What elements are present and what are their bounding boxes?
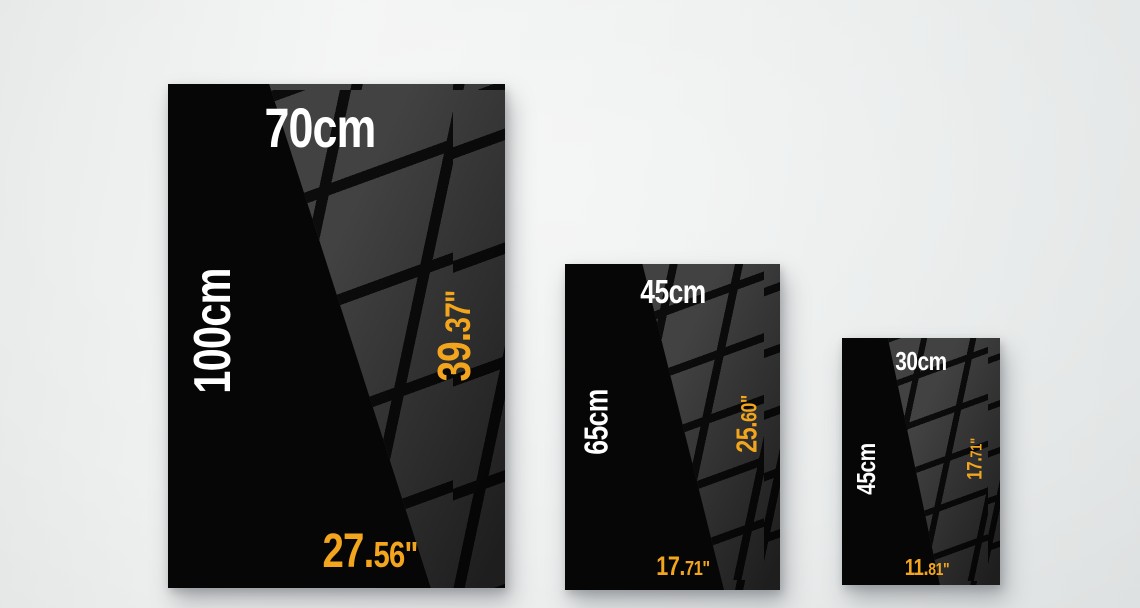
- inches-unit: ": [439, 290, 478, 303]
- inches-main: 17.: [963, 457, 986, 479]
- inches-main: 11.: [905, 554, 928, 580]
- width-inches-label: 11.81": [899, 556, 955, 579]
- width-cm-label: 45cm: [632, 275, 714, 308]
- width-inches-text: 11.81": [905, 556, 950, 579]
- height-inches-text: 39.37": [431, 290, 477, 381]
- inches-main: 17.: [657, 551, 686, 581]
- width-inches-text: 17.71": [657, 553, 710, 580]
- height-cm-label: 100cm: [187, 253, 239, 410]
- height-inches-text: 25.60": [733, 395, 762, 452]
- width-cm-text: 70cm: [264, 100, 375, 156]
- inches-main: 27.: [323, 525, 374, 578]
- poster-large: 70cm 100cm 39.37" 27.56": [168, 84, 505, 588]
- height-cm-text: 100cm: [187, 268, 239, 393]
- poster-small: 30cm 45cm 17.71" 11.81": [842, 338, 1000, 585]
- inches-frac: 60: [736, 403, 761, 422]
- inches-main: 39.: [428, 333, 480, 382]
- inches-unit: ": [968, 438, 985, 444]
- height-cm-text: 65cm: [580, 389, 613, 454]
- inches-unit: ": [405, 534, 418, 575]
- height-inches-label: 25.60": [733, 388, 762, 460]
- inches-unit: ": [943, 559, 949, 579]
- inches-main: 25.: [731, 422, 763, 453]
- height-inches-text: 17.71": [964, 438, 985, 480]
- width-cm-label: 70cm: [250, 100, 389, 156]
- poster-medium: 45cm 65cm 25.60" 17.71": [565, 264, 780, 590]
- height-cm-label: 45cm: [853, 437, 879, 501]
- width-cm-text: 45cm: [640, 275, 705, 308]
- inches-unit: ": [736, 395, 761, 403]
- height-cm-text: 45cm: [853, 443, 879, 495]
- width-cm-label: 30cm: [889, 348, 953, 374]
- width-inches-text: 27.56": [323, 528, 418, 576]
- inches-frac: 37: [439, 303, 478, 333]
- inches-frac: 71: [968, 444, 985, 458]
- inches-unit: ": [703, 557, 710, 580]
- height-inches-label: 39.37": [431, 279, 477, 393]
- inches-frac: 56: [374, 534, 405, 575]
- width-cm-text: 30cm: [895, 348, 947, 374]
- inches-frac: 71: [685, 557, 702, 580]
- height-inches-label: 17.71": [964, 433, 985, 485]
- inches-frac: 81: [929, 559, 944, 579]
- height-cm-label: 65cm: [580, 381, 613, 463]
- width-inches-label: 17.71": [650, 553, 717, 580]
- width-inches-label: 27.56": [311, 528, 430, 576]
